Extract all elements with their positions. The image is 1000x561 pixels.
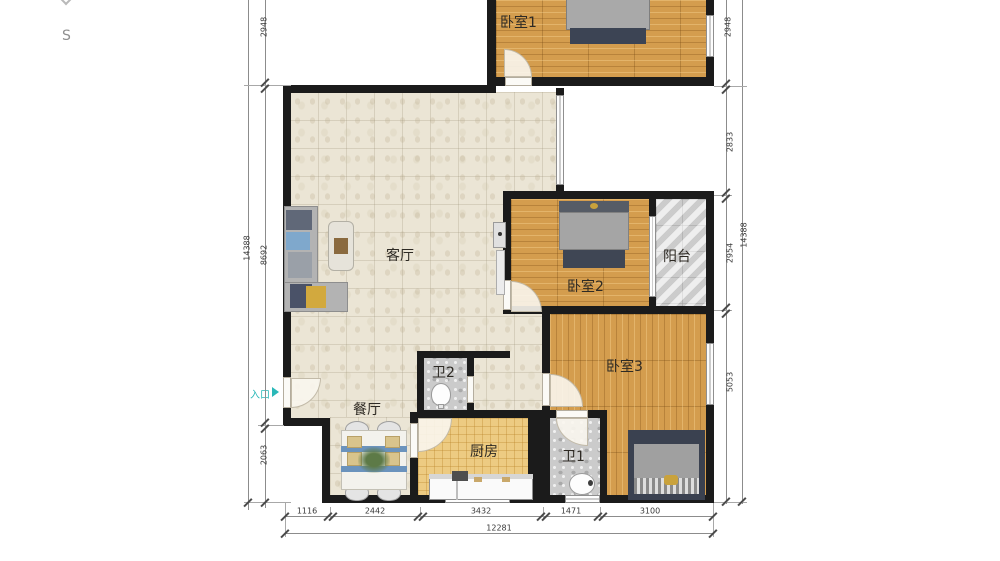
dim-bottom-3: 1471	[561, 507, 581, 516]
dim-bottom-1: 2442	[365, 507, 385, 516]
dim-right-inner-2: 2954	[726, 243, 735, 263]
dim-right-inner-1: 2833	[726, 132, 735, 152]
sofa-cushion	[286, 232, 310, 250]
sofa-cushion	[286, 210, 312, 230]
wall	[417, 351, 510, 358]
entrance-arrow-icon	[272, 387, 279, 397]
dining-plant	[358, 447, 390, 473]
sofa-blanket	[306, 286, 326, 308]
bed-bedroom1	[566, 0, 650, 30]
dim-right-inner-3: 5053	[726, 372, 735, 392]
balcony-sliding-door	[649, 216, 656, 297]
tv-screen	[496, 250, 505, 295]
dim-right-inner-0: 2948	[724, 17, 733, 37]
room-bedroom3-label: 卧室3	[606, 356, 643, 376]
room-bath2-label: 卫2	[432, 362, 455, 382]
extension-line	[244, 502, 291, 503]
bed-bedroom1-foot	[570, 28, 646, 44]
dimension-line	[285, 533, 714, 534]
room-bedroom2-label: 卧室2	[567, 276, 604, 296]
wall	[417, 351, 424, 418]
wall	[283, 85, 496, 93]
bath1-toilet-dot	[588, 480, 593, 486]
floor-plan-canvas: S 入口	[0, 0, 1000, 561]
bed-bedroom2-gold	[590, 203, 598, 209]
room-kitchen-label: 厨房	[470, 441, 498, 461]
bedroom1-door-leaf	[505, 77, 532, 86]
wall	[417, 410, 474, 418]
dim-bottom-2: 3432	[471, 507, 491, 516]
wall	[503, 191, 714, 199]
living-window	[556, 95, 564, 185]
dim-right-outer: 14388	[740, 222, 749, 247]
bed-bedroom2	[559, 212, 629, 250]
wall	[600, 410, 607, 502]
wall	[542, 306, 550, 373]
dim-bottom-4: 3100	[640, 507, 660, 516]
extension-line	[714, 86, 747, 87]
bath2-toilet	[431, 383, 451, 406]
dim-left-inner-0: 2948	[260, 17, 269, 37]
kitchen-stove	[452, 471, 468, 481]
wall	[322, 418, 330, 502]
dim-left-inner-1: 8692	[260, 245, 269, 265]
kitchen-item	[502, 477, 510, 482]
room-bath1-label: 卫1	[562, 446, 585, 466]
bath1-door-leaf	[556, 410, 588, 418]
tv-unit-dot	[498, 232, 502, 236]
bath2-door-leaf	[467, 376, 474, 403]
dimension-line	[285, 516, 714, 517]
bed-bedroom2-foot	[563, 250, 625, 268]
bedroom3-door-leaf	[542, 373, 550, 406]
bed-bedroom3	[634, 444, 699, 478]
compass-south-label: S	[62, 28, 71, 44]
room-living-label: 客厅	[386, 245, 414, 265]
kitchen-door-leaf	[410, 423, 418, 458]
room-dining-label: 餐厅	[353, 399, 381, 419]
wall	[487, 0, 496, 85]
entrance-label: 入口	[250, 386, 270, 401]
kitchen-item	[474, 477, 482, 482]
compass-north-arrow-icon	[55, 0, 78, 5]
room-balcony-label: 阳台	[663, 246, 691, 266]
room-bedroom1-label: 卧室1	[500, 12, 537, 32]
bedroom3-window	[706, 343, 714, 405]
entrance-door-leaf	[283, 377, 291, 408]
bath1-window	[565, 495, 600, 503]
bath2-toilet-dot	[438, 404, 444, 409]
dimension-line	[742, 0, 743, 504]
bedroom1-window	[706, 15, 714, 57]
coffee-table-book	[334, 238, 348, 254]
dim-left-inner-2: 2063	[260, 445, 269, 465]
bed-bedroom3-gold	[664, 475, 678, 485]
dim-bottom-0: 1116	[297, 507, 317, 516]
dim-bottom-total: 12281	[486, 524, 511, 533]
dim-left-outer: 14388	[243, 235, 252, 260]
sofa-cushion	[288, 252, 312, 278]
